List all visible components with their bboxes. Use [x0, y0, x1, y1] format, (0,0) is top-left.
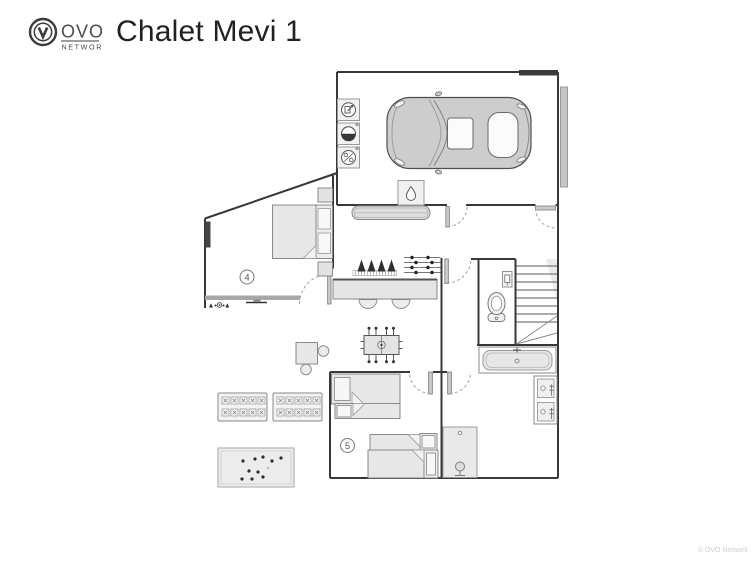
door-swing-arc: [536, 208, 556, 228]
pillow: [335, 378, 351, 401]
window-band: [205, 296, 300, 301]
door-leaf: [429, 372, 433, 394]
door-swing-arc: [410, 373, 431, 394]
games-table: [296, 343, 329, 375]
water-heater-icon: [398, 181, 424, 206]
wall-thick-segment: [519, 70, 558, 76]
boot-warmer-icon: [353, 260, 397, 276]
door-leaf: [536, 206, 556, 210]
washing-machine-icon: [338, 123, 360, 145]
bench: [352, 206, 430, 220]
bedroom-5: 5: [332, 374, 439, 478]
door-swing-arc: [300, 274, 330, 304]
garage-door-icon: [561, 87, 568, 187]
garage-room: [338, 91, 532, 205]
logo-text: OVO: [61, 22, 102, 42]
door-swing-arc: [450, 373, 471, 394]
twin-sinks: [534, 376, 557, 424]
nightstand: [318, 188, 333, 202]
page-header: OVO NETWORK Chalet Mevi 1: [28, 13, 302, 51]
sink-icon: [538, 379, 555, 398]
counter: [333, 280, 437, 309]
door-leaf: [328, 274, 331, 304]
foosball-table-icon: [361, 327, 403, 363]
bunk-beds-top: [332, 374, 401, 419]
pillow: [318, 233, 331, 254]
page-title: Chalet Mevi 1: [116, 15, 302, 49]
boot-room-appliance-icon: [338, 99, 360, 121]
logo-v-icon: [39, 28, 47, 38]
bunk-beds-bottom: [368, 434, 438, 479]
ski-rack-icon: [404, 256, 441, 274]
rug: [218, 448, 294, 487]
bathtub-icon: [479, 347, 556, 373]
pillow: [422, 436, 435, 449]
door-swing-arc: [447, 259, 471, 283]
bathroom: [443, 347, 557, 478]
flush-plate-icon: [503, 272, 513, 288]
room-number: 4: [244, 273, 249, 284]
mini-symbols: [209, 303, 229, 308]
pillow: [318, 209, 331, 230]
door-leaf: [446, 207, 450, 228]
double-bed: [273, 205, 333, 259]
chair: [301, 364, 312, 375]
locker-unit: [273, 393, 322, 421]
toilet-icon: [488, 293, 505, 322]
door-leaf: [445, 259, 449, 284]
pillow: [427, 453, 436, 475]
ovo-network-logo[interactable]: OVO NETWORK: [28, 13, 102, 51]
floorplan-page: OVO NETWORK Chalet Mevi 1: [0, 0, 756, 567]
chair: [359, 300, 377, 309]
window-left-wall: [206, 222, 211, 248]
car-icon: [387, 91, 531, 175]
sink-icon: [538, 403, 555, 422]
ski-room: [333, 206, 441, 309]
locker-unit: [218, 393, 267, 421]
room-number: 5: [345, 441, 350, 452]
nightstand: [318, 262, 333, 276]
shower-icon: [443, 427, 477, 478]
chair: [318, 346, 329, 357]
logo-subtext: NETWORK: [62, 43, 103, 52]
pillow: [337, 406, 351, 418]
copyright-text: © OVO Network: [698, 547, 748, 554]
chair: [392, 300, 410, 309]
bedroom-4: 4: [209, 188, 333, 308]
door-swing-arc: [448, 207, 467, 227]
floorplan-svg: 4: [0, 0, 756, 567]
stairs-icon: [517, 259, 558, 344]
door-leaf: [448, 372, 452, 394]
wc-room: [488, 272, 512, 322]
tumble-dryer-icon: [338, 147, 360, 168]
